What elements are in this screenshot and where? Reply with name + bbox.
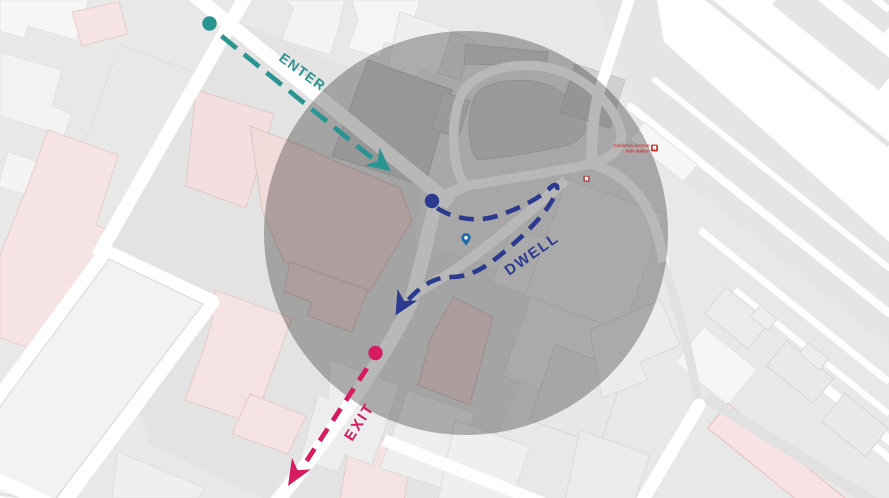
svg-text:California Avenue: California Avenue <box>614 143 650 148</box>
svg-text:train station: train station <box>626 149 650 154</box>
